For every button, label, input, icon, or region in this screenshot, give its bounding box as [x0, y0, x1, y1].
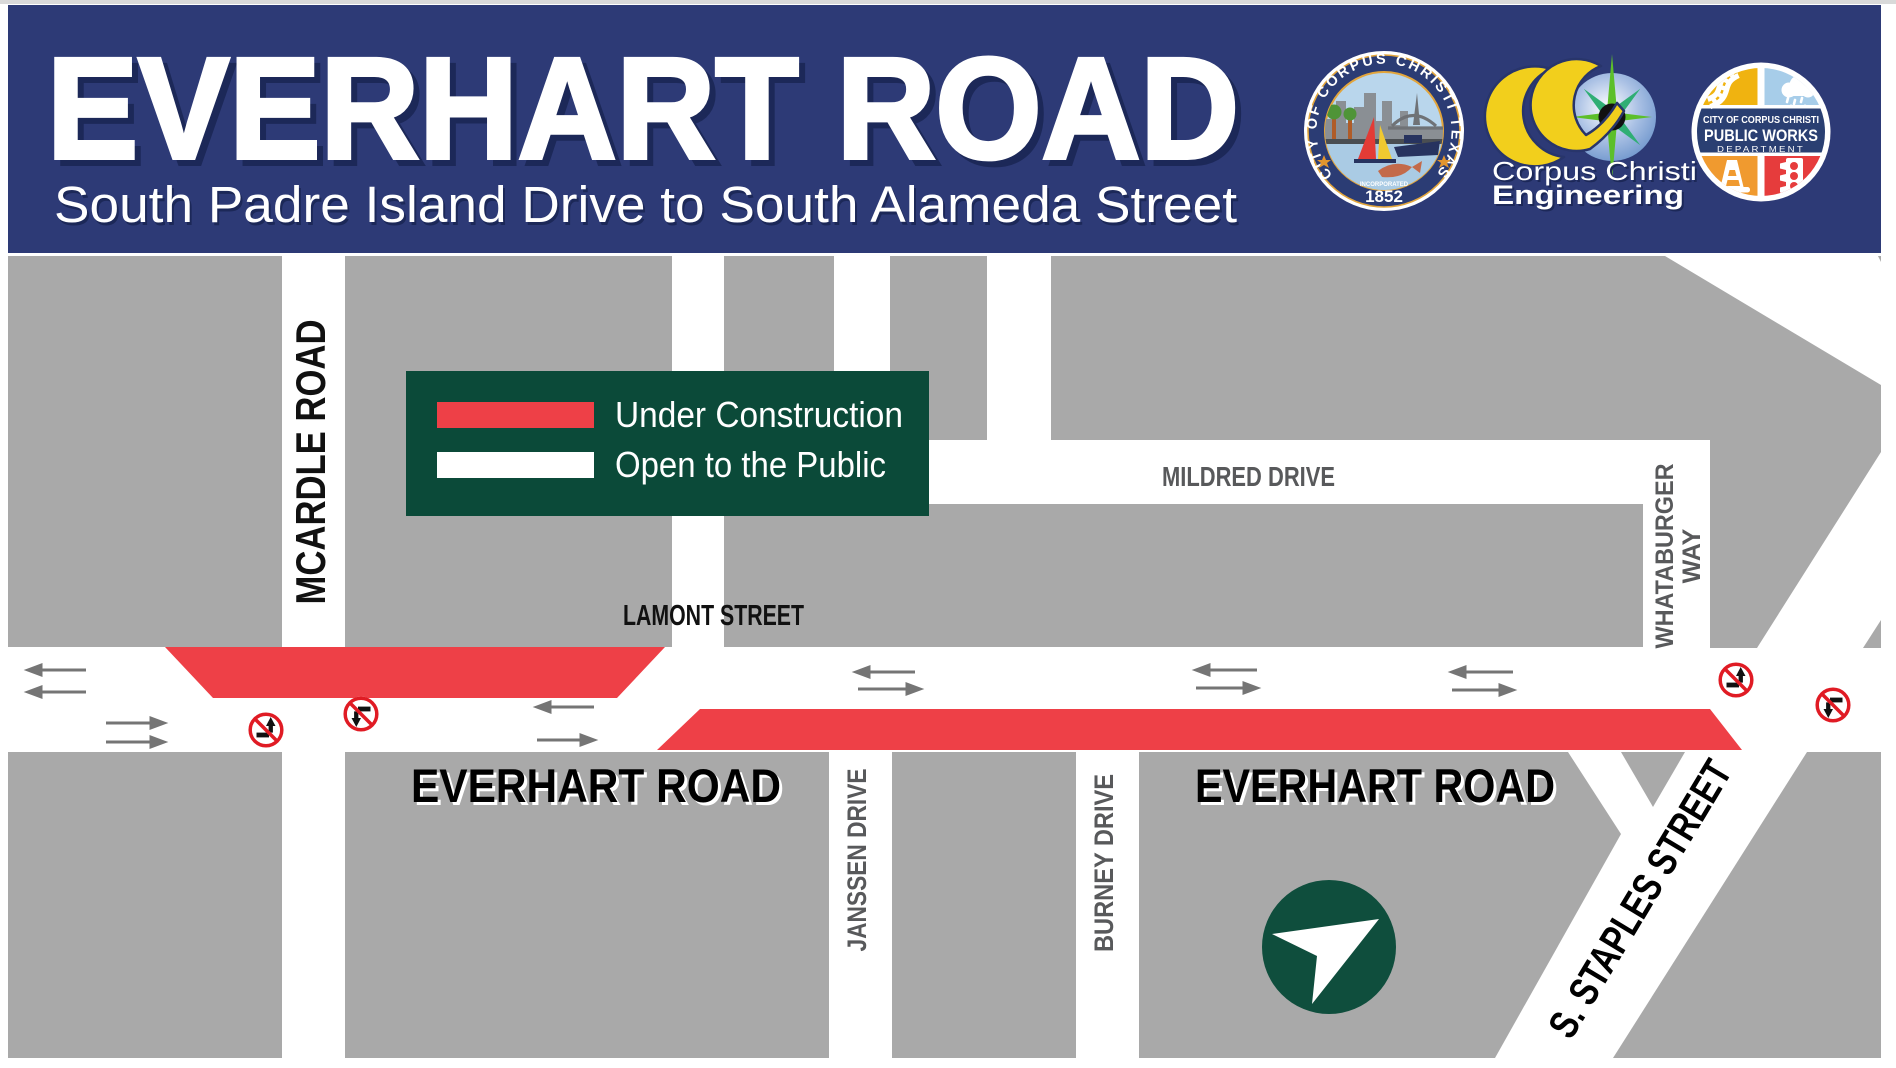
- svg-text:MILDRED DRIVE: MILDRED DRIVE: [1162, 461, 1335, 492]
- svg-text:PUBLIC WORKS: PUBLIC WORKS: [1704, 127, 1818, 145]
- svg-text:BURNEY DRIVE: BURNEY DRIVE: [1089, 774, 1119, 952]
- svg-text:EVERHART ROAD: EVERHART ROAD: [1195, 759, 1555, 812]
- svg-text:WHATABURGER: WHATABURGER: [1651, 464, 1679, 649]
- svg-text:Engineering: Engineering: [1492, 180, 1684, 210]
- svg-text:EVERHART ROAD: EVERHART ROAD: [47, 28, 1239, 189]
- svg-text:WAY: WAY: [1678, 528, 1706, 583]
- svg-text:Under Construction: Under Construction: [615, 394, 903, 435]
- svg-text:MCARDLE ROAD: MCARDLE ROAD: [287, 320, 334, 605]
- svg-text:DEPARTMENT: DEPARTMENT: [1717, 144, 1805, 154]
- svg-text:CITY OF CORPUS CHRISTI: CITY OF CORPUS CHRISTI: [1703, 115, 1819, 126]
- svg-text:Open to the Public: Open to the Public: [615, 444, 886, 485]
- svg-text:1852: 1852: [1365, 187, 1403, 206]
- svg-text:JANSSEN DRIVE: JANSSEN DRIVE: [842, 769, 872, 952]
- svg-text:EVERHART ROAD: EVERHART ROAD: [411, 759, 781, 812]
- svg-text:LAMONT STREET: LAMONT STREET: [623, 600, 804, 632]
- svg-text:South Padre Island Drive to So: South Padre Island Drive to South Alamed…: [54, 176, 1237, 233]
